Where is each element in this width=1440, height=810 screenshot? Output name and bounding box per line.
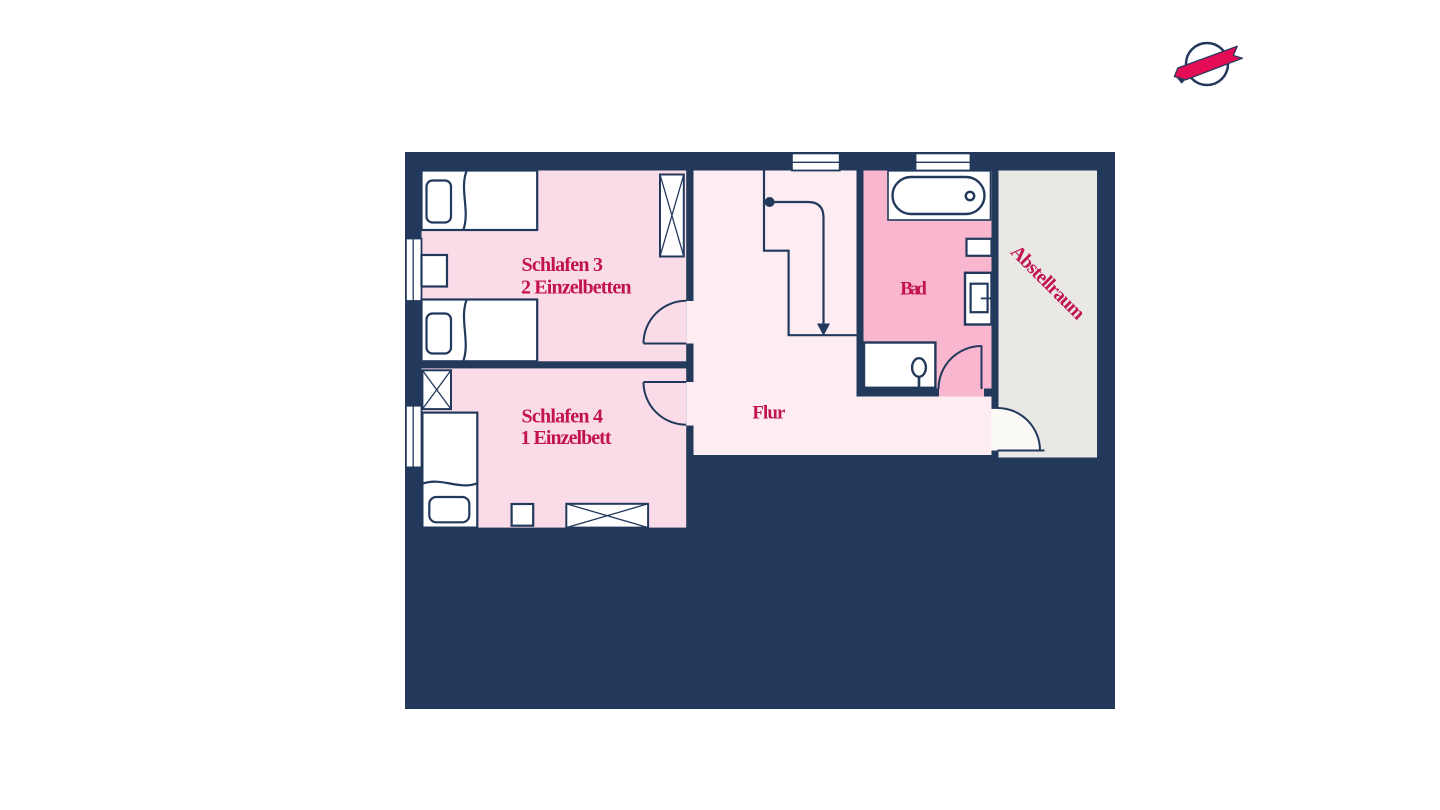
svg-text:Bad: Bad: [900, 279, 927, 300]
svg-text:2 Einzelbetten: 2 Einzelbetten: [521, 276, 632, 298]
svg-text:Schlafen 3: Schlafen 3: [522, 254, 604, 276]
svg-text:Schlafen 4: Schlafen 4: [522, 406, 604, 428]
svg-text:Flur: Flur: [752, 402, 786, 423]
svg-text:1 Einzelbett: 1 Einzelbett: [521, 427, 612, 449]
